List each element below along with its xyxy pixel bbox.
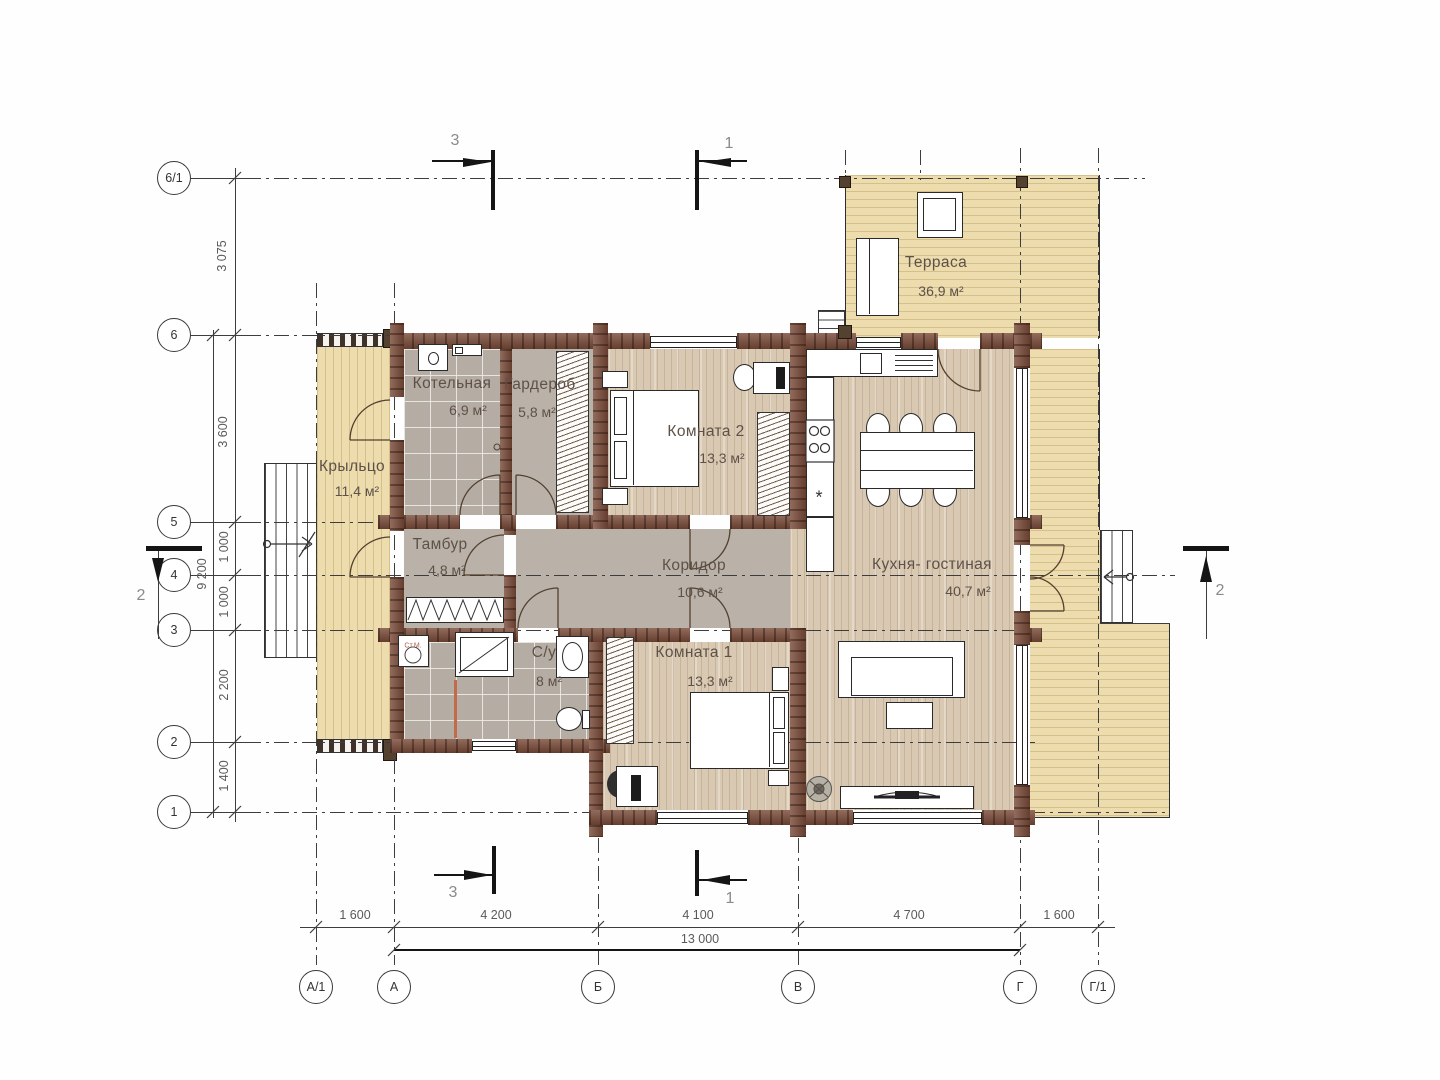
room-area-boiler: 6,9 м² bbox=[449, 402, 487, 418]
floor-plan: 3 075 3 600 1 000 1 000 2 200 1 400 9 20… bbox=[0, 0, 1440, 1080]
room-area-porch: 11,4 м² bbox=[335, 483, 379, 499]
room-label-porch: Крыльцо bbox=[319, 458, 385, 476]
room-label-tambour: Тамбур bbox=[412, 536, 467, 554]
room-label-dressing: Гардероб bbox=[504, 376, 575, 394]
room-area-terrace: 36,9 м² bbox=[918, 283, 963, 299]
room-label-boiler: Котельная bbox=[413, 375, 492, 393]
tv-icon bbox=[874, 791, 940, 799]
room-area-tambour: 4,8 м² bbox=[428, 562, 466, 578]
room-area-bathroom: 8 м² bbox=[536, 673, 562, 689]
room-label-terrace: Терраса bbox=[905, 254, 967, 272]
room-area-room2: 13,3 м² bbox=[699, 450, 744, 466]
stove-icon bbox=[806, 420, 834, 462]
plan-annotations bbox=[0, 0, 1440, 1080]
room-area-kitchen: 40,7 м² bbox=[945, 583, 990, 599]
washing-machine-label: Ст.М. bbox=[404, 643, 421, 650]
bathtub-diagonal bbox=[459, 637, 509, 673]
tambour-grate-zigzag bbox=[408, 600, 501, 620]
room-area-corridor: 10,6 м² bbox=[677, 584, 722, 600]
room-label-room1: Комната 1 bbox=[655, 644, 732, 662]
vent-mark-label: * bbox=[815, 488, 822, 509]
room-area-room1: 13,3 м² bbox=[687, 673, 732, 689]
plant-leaves bbox=[810, 781, 828, 797]
room-label-corridor: Коридор bbox=[662, 557, 726, 575]
room-label-bathroom: С/у bbox=[532, 644, 556, 662]
room-label-kitchen: Кухня- гостиная bbox=[872, 556, 992, 574]
room-label-room2: Комната 2 bbox=[667, 423, 744, 441]
room-area-dressing: 5,8 м² bbox=[518, 404, 556, 420]
door-handle-icon bbox=[494, 444, 500, 450]
section-arrows bbox=[152, 158, 1212, 885]
